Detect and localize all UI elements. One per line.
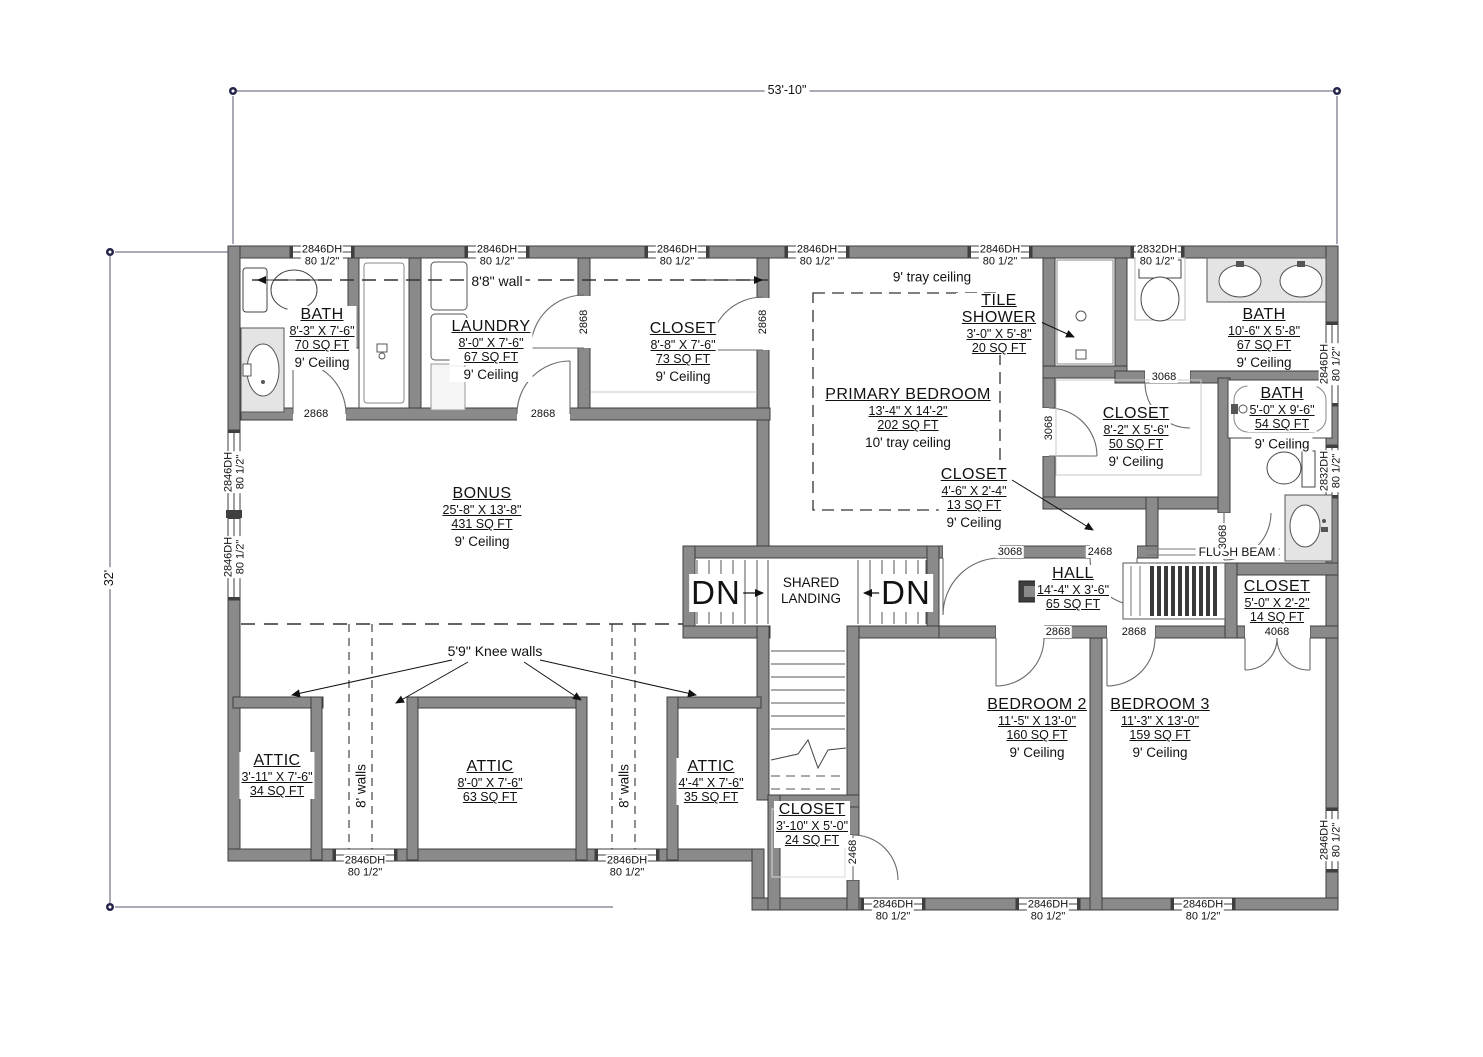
attic-walls-note-left: 8' walls — [354, 761, 369, 811]
bath3-ceiling-note: 9' Ceiling — [1251, 437, 1312, 452]
room-label-tile-shower: TILE SHOWER 3'-0" X 5'-8" 20 SQ FT — [956, 293, 1042, 355]
room-label-closet3: CLOSET 4'-6" X 2'-4" 13 SQ FT 9' Ceiling — [939, 466, 1009, 530]
window-label: 2846DH80 1/2" — [979, 244, 1021, 269]
window-label: 2846DH80 1/2" — [301, 244, 343, 269]
double-sink-icon — [1207, 258, 1326, 302]
wall-height-note: 8'8" wall — [468, 273, 525, 289]
room-label-primary-bedroom: PRIMARY BEDROOM 13'-4" X 14'-2" 202 SQ F… — [823, 386, 992, 450]
room-label-closet5: CLOSET 3'-10" X 5'-0" 24 SQ FT — [774, 801, 850, 848]
door-label: 2868 — [1120, 626, 1148, 638]
shared-landing-label: SHARED LANDING — [773, 575, 849, 607]
window-label: 2846DH80 1/2" — [223, 536, 248, 578]
door-label: 4068 — [1263, 626, 1291, 638]
window-label: 2846DH80 1/2" — [223, 451, 248, 493]
sink-icon — [1285, 495, 1332, 561]
room-label-bedroom3: BEDROOM 3 11'-3" X 13'-0" 159 SQ FT 9' C… — [1108, 696, 1212, 760]
room-label-closet2: CLOSET 8'-2" X 5'-6" 50 SQ FT 9' Ceiling — [1101, 405, 1171, 469]
door-label: 3068 — [996, 546, 1024, 558]
door-label: 2468 — [1086, 546, 1114, 558]
window-label: 2846DH80 1/2" — [476, 244, 518, 269]
overall-height-dimension: 32' — [102, 567, 116, 589]
door-label: 3068 — [1217, 523, 1229, 551]
door-label: 2868 — [302, 408, 330, 420]
stairs-down-label-left: DN — [689, 574, 743, 612]
window-label: 2846DH80 1/2" — [1319, 343, 1344, 385]
attic-walls-note-right: 8' walls — [617, 761, 632, 811]
room-label-bedroom2: BEDROOM 2 11'-5" X 13'-0" 160 SQ FT 9' C… — [985, 696, 1089, 760]
window-label: 2846DH80 1/2" — [344, 855, 386, 880]
door-label: 3068 — [1150, 371, 1178, 383]
window-label: 2846DH80 1/2" — [656, 244, 698, 269]
room-label-bath3: BATH 5'-0" X 9'-6" 54 SQ FT — [1247, 385, 1316, 432]
toilet-icon — [1267, 451, 1315, 487]
room-label-bath2: BATH 10'-6" X 5'-8" 67 SQ FT 9' Ceiling — [1226, 306, 1302, 370]
door-label: 2868 — [1044, 626, 1072, 638]
room-label-attic2: ATTIC 8'-0" X 7'-6" 63 SQ FT — [455, 758, 524, 805]
room-label-closet1: CLOSET 8'-8" X 7'-6" 73 SQ FT 9' Ceiling — [648, 320, 718, 384]
door-label: 2868 — [578, 308, 590, 336]
door-label: 2868 — [757, 308, 769, 336]
flush-beam-label: FLUSH BEAM — [1196, 545, 1279, 559]
door-label: 2868 — [529, 408, 557, 420]
floor-plan-drawing — [0, 0, 1483, 1057]
tray-ceiling-note: 9' tray ceiling — [890, 270, 974, 285]
window-label: 2846DH80 1/2" — [606, 855, 648, 880]
knee-walls-note: 5'9" Knee walls — [445, 643, 546, 659]
tile-shower-icon — [1057, 260, 1113, 364]
floor-plan: BATH 8'-3" X 7'-6" 70 SQ FT 9' Ceiling L… — [0, 0, 1483, 1057]
stairs-down-label-right: DN — [879, 574, 933, 612]
overall-width-dimension: 53'-10" — [765, 83, 810, 97]
room-label-attic1: ATTIC 3'-11" X 7'-6" 34 SQ FT — [239, 752, 314, 799]
attic-stair — [1123, 563, 1225, 619]
room-label-laundry: LAUNDRY 8'-0" X 7'-6" 67 SQ FT 9' Ceilin… — [450, 318, 533, 382]
window-label: 2832DH80 1/2" — [1319, 450, 1344, 492]
window-label: 2846DH80 1/2" — [1027, 899, 1069, 924]
door-label: 2468 — [847, 838, 859, 866]
window-label: 2832DH80 1/2" — [1136, 244, 1178, 269]
room-label-bonus: BONUS 25'-8" X 13'-8" 431 SQ FT 9' Ceili… — [441, 485, 524, 549]
room-label-closet4: CLOSET 5'-0" X 2'-2" 14 SQ FT — [1242, 578, 1312, 625]
room-label-hall: HALL 14'-4" X 3'-6" 65 SQ FT — [1035, 565, 1111, 612]
window-label: 2846DH80 1/2" — [796, 244, 838, 269]
sink-icon — [241, 328, 284, 412]
door-label: 3068 — [1043, 414, 1055, 442]
window-label: 2846DH80 1/2" — [872, 899, 914, 924]
room-label-attic3: ATTIC 4'-4" X 7'-6" 35 SQ FT — [676, 758, 745, 805]
window-label: 2846DH80 1/2" — [1319, 819, 1344, 861]
window-label: 2846DH80 1/2" — [1182, 899, 1224, 924]
room-label-bath1: BATH 8'-3" X 7'-6" 70 SQ FT 9' Ceiling — [287, 306, 356, 370]
